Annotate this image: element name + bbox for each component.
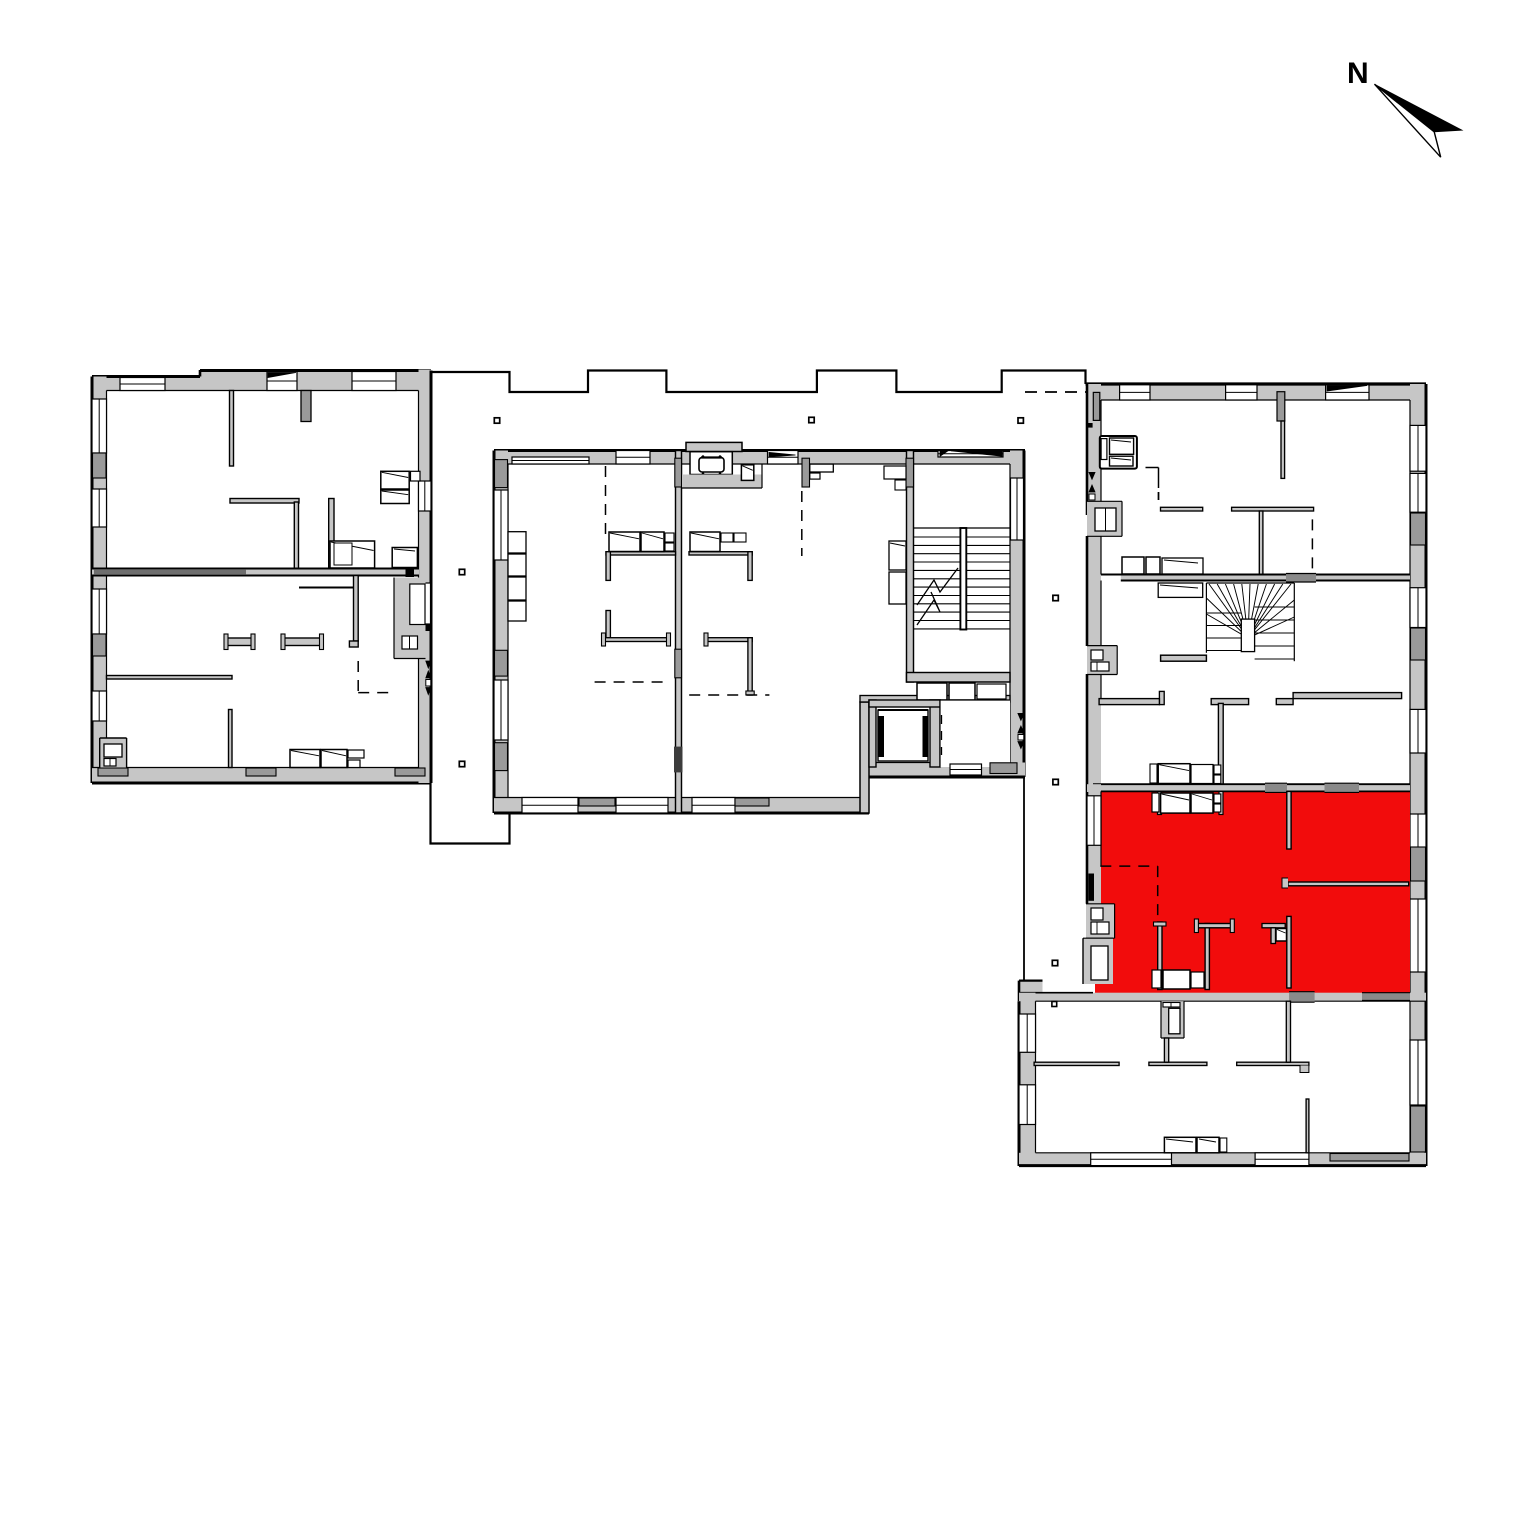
svg-text:N: N <box>1347 57 1369 90</box>
